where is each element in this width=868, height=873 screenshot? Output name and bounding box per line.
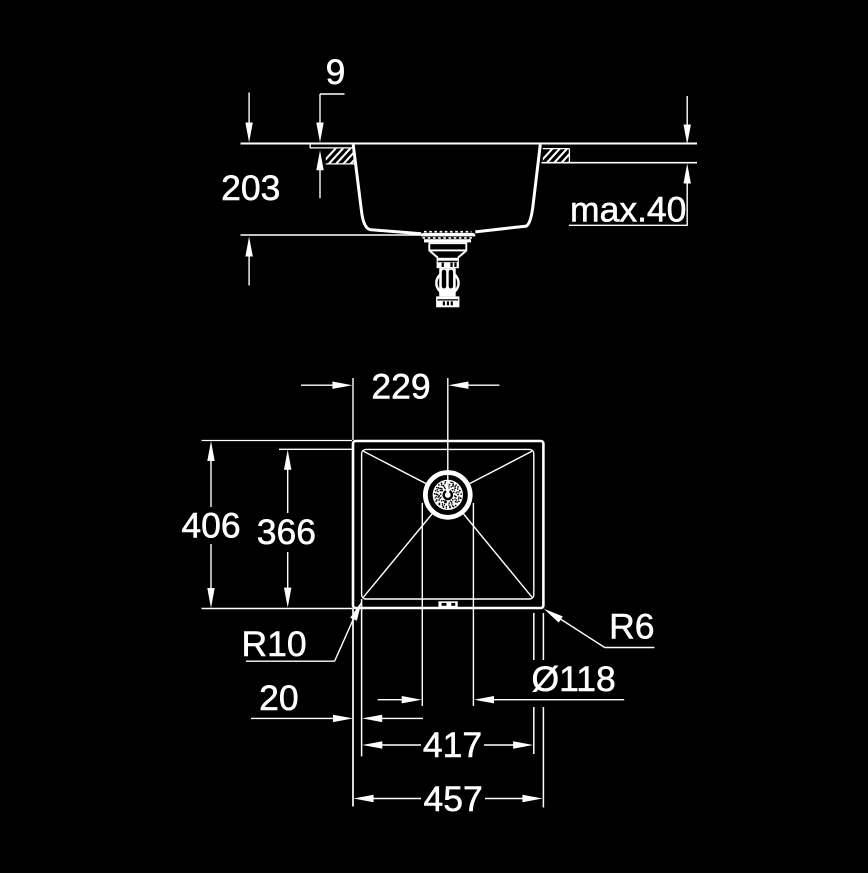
svg-text:229: 229 — [371, 367, 430, 407]
svg-text:203: 203 — [221, 168, 280, 208]
svg-text:417: 417 — [423, 725, 482, 765]
svg-text:R6: R6 — [609, 607, 654, 647]
svg-text:Ø118: Ø118 — [531, 659, 615, 699]
svg-text:366: 366 — [257, 512, 316, 552]
svg-text:406: 406 — [181, 505, 240, 545]
svg-text:9: 9 — [326, 52, 346, 92]
svg-text:R10: R10 — [241, 624, 306, 664]
svg-text:max.40: max.40 — [570, 190, 686, 230]
svg-text:20: 20 — [259, 678, 299, 718]
svg-text:457: 457 — [423, 779, 482, 819]
